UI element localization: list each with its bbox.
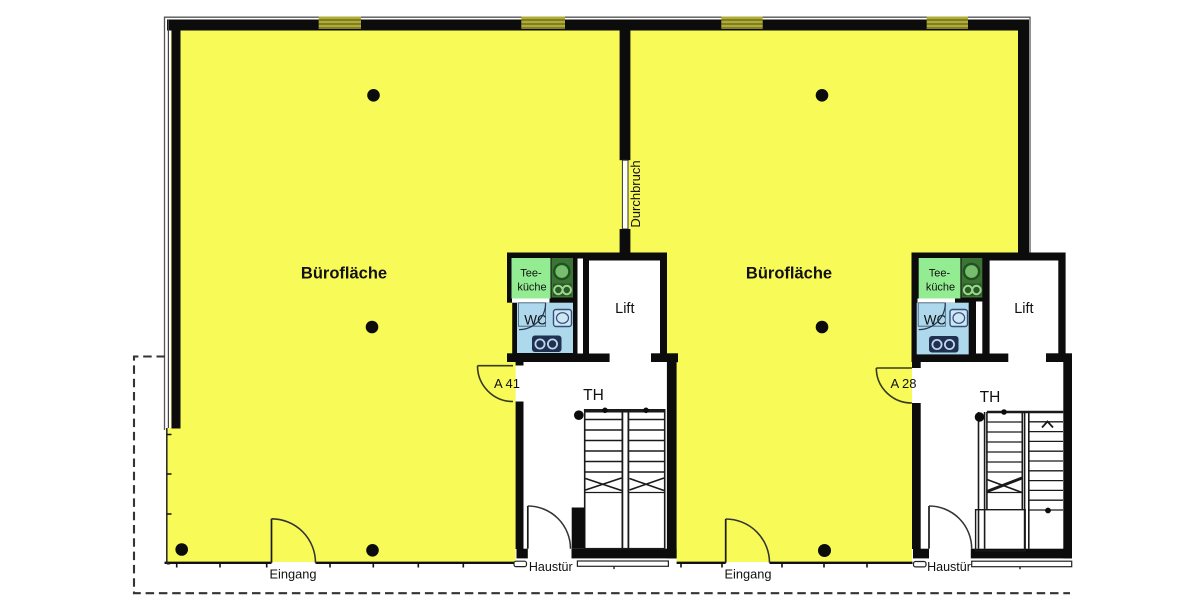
svg-text:Haustür: Haustür (529, 560, 573, 574)
svg-text:Eingang: Eingang (270, 567, 317, 582)
svg-text:Tee-: Tee- (520, 268, 542, 280)
svg-text:Durchbruch: Durchbruch (628, 160, 643, 227)
svg-text:TH: TH (583, 387, 604, 404)
svg-text:Tee-: Tee- (929, 268, 951, 280)
svg-text:Eingang: Eingang (725, 567, 772, 582)
svg-text:A 41: A 41 (494, 376, 520, 391)
svg-text:TH: TH (980, 389, 1001, 406)
svg-text:Haustür: Haustür (927, 560, 971, 574)
svg-text:A 28: A 28 (890, 376, 916, 391)
svg-text:küche: küche (926, 282, 955, 294)
svg-text:Bürofläche: Bürofläche (746, 265, 832, 283)
svg-text:Bürofläche: Bürofläche (301, 265, 387, 283)
svg-text:Lift: Lift (615, 301, 634, 317)
svg-text:küche: küche (517, 282, 546, 294)
svg-text:Lift: Lift (1014, 301, 1033, 317)
